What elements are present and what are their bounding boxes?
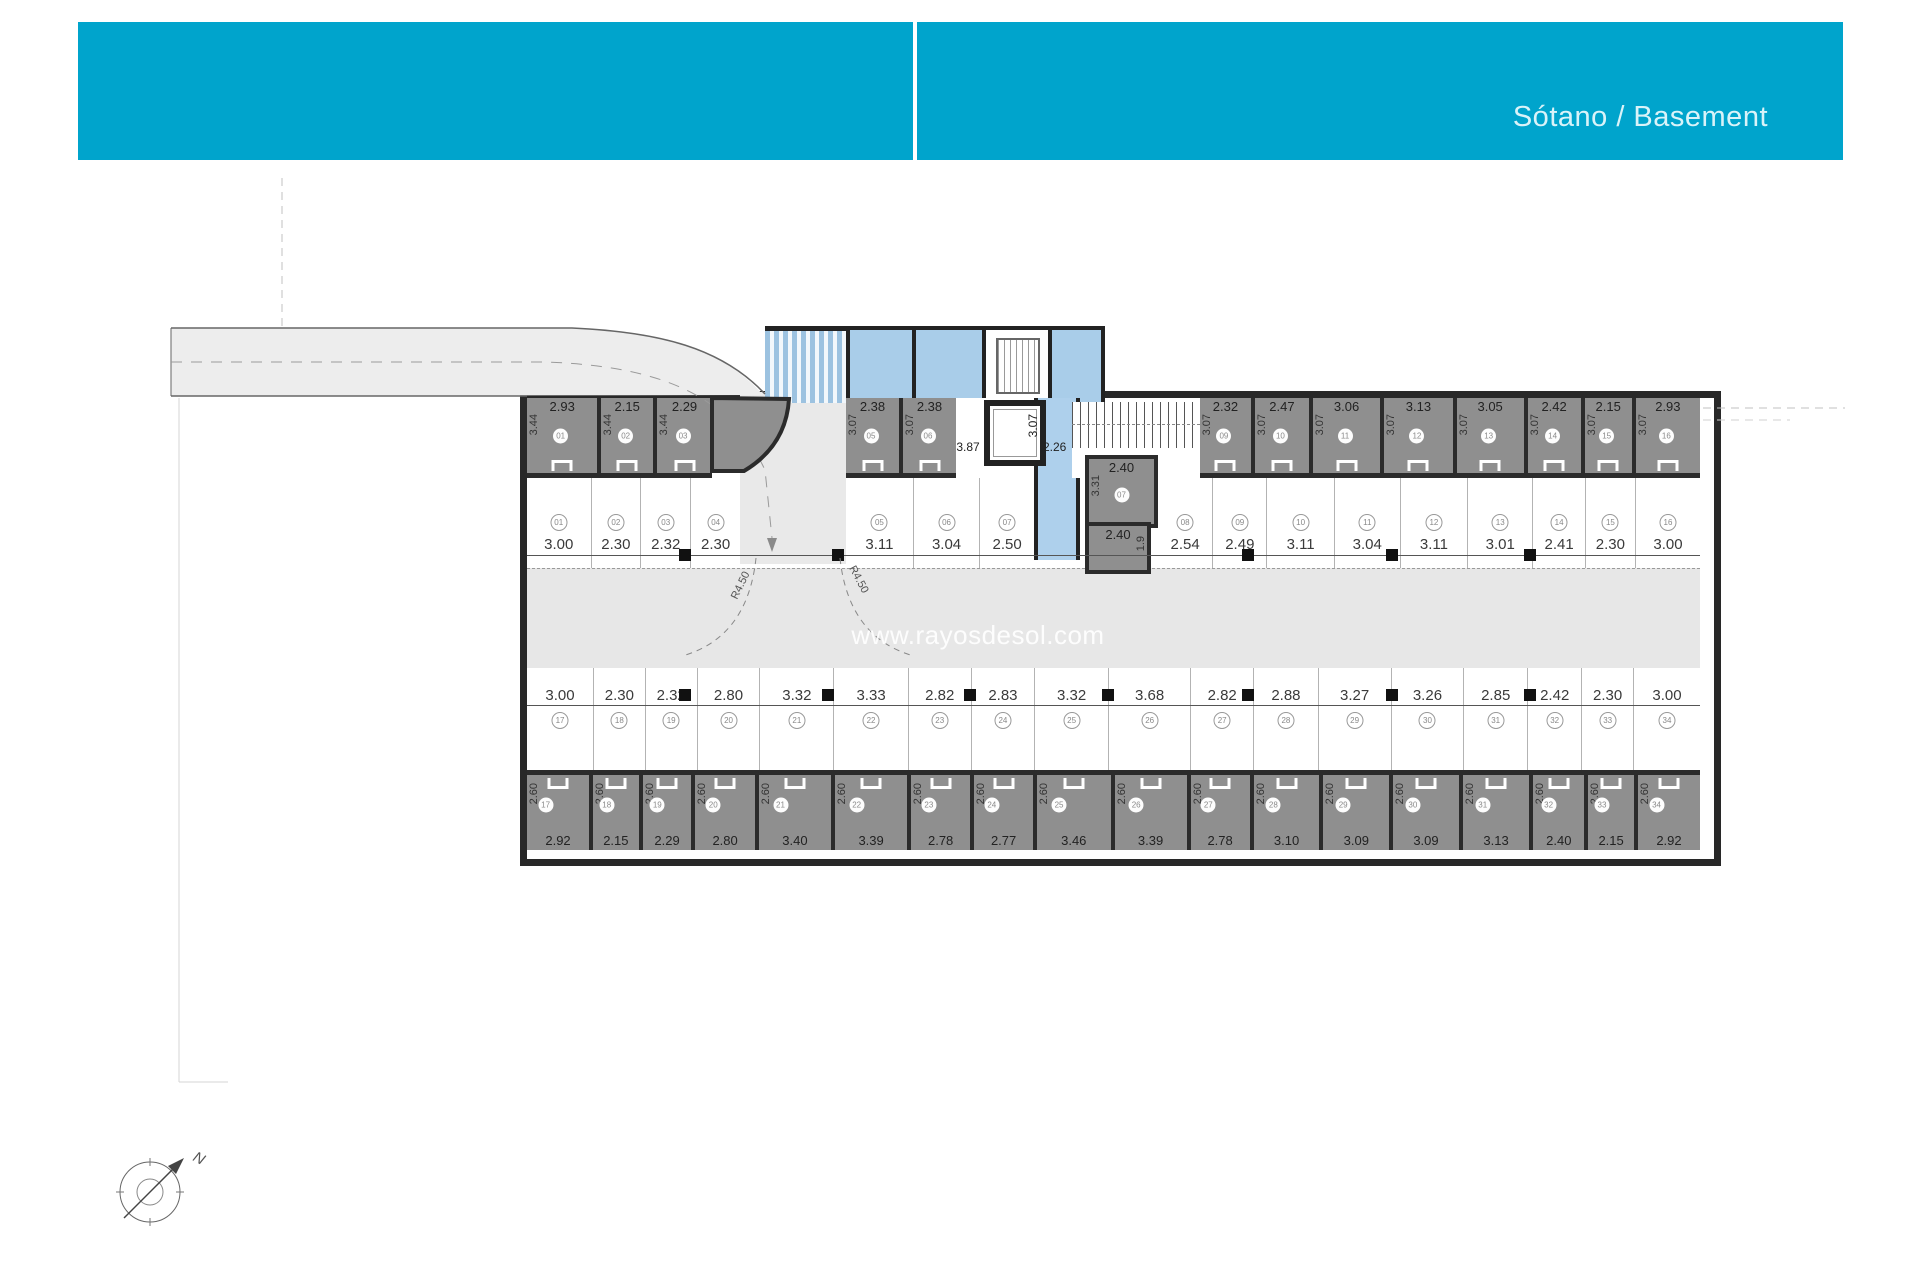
width-dimension: 2.78 — [1191, 833, 1250, 848]
door-icon — [862, 460, 883, 471]
storage-unit: 2.423.0714 — [1524, 398, 1581, 473]
space-number-badge: 29 — [1346, 712, 1363, 729]
ramp-lane — [740, 392, 846, 564]
door-icon — [657, 778, 678, 789]
depth-dimension: 3.07 — [1586, 414, 1598, 435]
width-dimension: 3.00 — [1636, 536, 1700, 553]
space-number-badge: 14 — [1551, 514, 1568, 531]
parking-space: 343.00 — [1633, 668, 1700, 770]
storage-unit: 2.153.4402 — [597, 398, 653, 473]
space-number-badge: 31 — [1487, 712, 1504, 729]
depth-dimension: 3.07 — [847, 414, 859, 435]
space-number-badge: 02 — [607, 514, 624, 531]
door-icon — [715, 778, 736, 789]
storage-unit: 3.092.6029 — [1319, 775, 1389, 850]
parking-row-lower: 173.00182.30192.32202.80213.32223.33232.… — [527, 668, 1700, 770]
width-dimension: 2.85 — [1464, 687, 1527, 704]
storage-row-top-mid: 2.383.07052.383.0706 — [846, 398, 956, 478]
unit-number-badge: 32 — [1541, 798, 1556, 813]
unit-number-badge: 29 — [1336, 798, 1351, 813]
storage-unit: 2.933.4401 — [527, 398, 597, 473]
door-icon — [1140, 778, 1161, 789]
space-number-badge: 19 — [663, 712, 680, 729]
door-icon — [1210, 778, 1231, 789]
door-icon — [930, 778, 951, 789]
width-dimension: 3.68 — [1109, 687, 1190, 704]
corridor-width-dimension: 2.26 — [1043, 440, 1066, 454]
door-icon — [605, 778, 626, 789]
width-dimension: 2.42 — [1528, 687, 1581, 704]
storage-unit: 2.922.6034 — [1634, 775, 1700, 850]
space-number-badge: 13 — [1492, 514, 1509, 531]
space-number-badge: 18 — [611, 712, 628, 729]
door-icon — [1336, 460, 1357, 471]
width-dimension: 2.15 — [1588, 833, 1634, 848]
unit-number-badge: 23 — [921, 798, 936, 813]
storage-unit: 3.133.0712 — [1380, 398, 1453, 473]
width-dimension: 3.09 — [1323, 833, 1389, 848]
depth-dimension: 2.60 — [760, 783, 772, 804]
door-icon — [617, 460, 638, 471]
door-icon — [552, 460, 573, 471]
space-number-badge: 27 — [1214, 712, 1231, 729]
unit-number-badge: 34 — [1649, 798, 1664, 813]
width-dimension: 3.33 — [834, 687, 907, 704]
space-number-badge: 28 — [1277, 712, 1294, 729]
space-number-badge: 32 — [1546, 712, 1563, 729]
space-number-badge: 11 — [1359, 514, 1376, 531]
parking-space: 253.32 — [1034, 668, 1108, 770]
width-dimension: 3.13 — [1463, 833, 1530, 848]
storage-unit: 2.153.0715 — [1581, 398, 1632, 473]
space-number-badge: 08 — [1177, 514, 1194, 531]
space-number-badge: 26 — [1141, 712, 1158, 729]
width-dimension: 2.47 — [1255, 399, 1309, 414]
door-icon — [1658, 778, 1679, 789]
parking-space: 263.68 — [1108, 668, 1190, 770]
unit-number-badge: 07 — [1114, 487, 1129, 502]
space-number-badge: 01 — [550, 514, 567, 531]
depth-dimension: 2.60 — [1394, 783, 1406, 804]
parking-space: 232.82 — [908, 668, 971, 770]
parking-space: 182.30 — [593, 668, 645, 770]
unit-number-badge: 03 — [676, 428, 691, 443]
width-dimension: 2.29 — [657, 399, 712, 414]
unit-number-badge: 12 — [1409, 428, 1424, 443]
depth-dimension: 3.44 — [602, 414, 614, 435]
header-bar-right: Sótano / Basement — [917, 22, 1843, 160]
depth-dimension: 3.07 — [1637, 414, 1649, 435]
storage-unit: 3.092.6030 — [1389, 775, 1459, 850]
width-dimension: 2.80 — [695, 833, 754, 848]
width-dimension: 3.13 — [1384, 399, 1453, 414]
unit-number-badge: 02 — [618, 428, 633, 443]
storage-row-top-right: 2.323.07092.473.07103.063.07113.133.0712… — [1200, 398, 1700, 478]
width-dimension: 2.93 — [527, 399, 597, 414]
storage-unit: 2.772.6024 — [970, 775, 1033, 850]
unit-number-badge: 13 — [1481, 428, 1496, 443]
unit-number-badge: 14 — [1545, 428, 1560, 443]
ramp-hatch — [765, 326, 846, 403]
depth-dimension: 3.44 — [716, 412, 728, 433]
width-dimension: 2.54 — [1158, 536, 1212, 553]
header-bar-left — [78, 22, 913, 160]
unit-number-badge: 10 — [1273, 428, 1288, 443]
column — [822, 689, 834, 701]
depth-dimension: 3.07 — [1314, 414, 1326, 435]
storage-unit: 3.392.6026 — [1111, 775, 1187, 850]
space-number-badge: 25 — [1063, 712, 1080, 729]
width-dimension: 2.40 — [1533, 833, 1584, 848]
width-dimension: 2.30 — [592, 536, 641, 553]
column — [964, 689, 976, 701]
column — [679, 689, 691, 701]
width-dimension: 3.46 — [1037, 833, 1111, 848]
unit-number-badge: 06 — [921, 428, 936, 443]
unit-number-badge: 24 — [984, 798, 999, 813]
door-icon — [548, 778, 569, 789]
column — [1524, 549, 1536, 561]
lobby-width-dimension: 3.87 — [938, 440, 998, 454]
unit-number-badge: 21 — [773, 798, 788, 813]
width-dimension: 2.80 — [698, 687, 760, 704]
width-dimension: 3.40 — [759, 833, 831, 848]
depth-dimension: 3.07 — [1201, 414, 1213, 435]
width-dimension: 3.39 — [835, 833, 907, 848]
storage-unit: 2.152.6018 — [589, 775, 639, 850]
width-dimension: 2.50 — [980, 536, 1034, 553]
corridor-depth-dimension: 3.07 — [1026, 414, 1040, 437]
space-number-badge: 20 — [720, 712, 737, 729]
width-dimension: 2.93 — [1636, 399, 1700, 414]
width-dimension: 3.00 — [1634, 687, 1700, 704]
door-icon — [1415, 778, 1436, 789]
door-icon — [1544, 460, 1565, 471]
parking-space: 332.30 — [1581, 668, 1633, 770]
door-icon — [1408, 460, 1429, 471]
column — [1242, 549, 1254, 561]
width-dimension: 3.11 — [1267, 536, 1333, 553]
space-number-badge: 05 — [871, 514, 888, 531]
width-dimension: 2.40 — [1089, 460, 1154, 475]
space-number-badge: 16 — [1659, 514, 1676, 531]
width-dimension: 2.92 — [527, 833, 589, 848]
door-icon — [674, 460, 695, 471]
width-dimension: 2.30 — [1586, 536, 1635, 553]
width-dimension: 2.15 — [1585, 399, 1632, 414]
space-number-badge: 17 — [552, 712, 569, 729]
door-icon — [861, 778, 882, 789]
storage-unit: 2.40 3.31 07 — [1085, 455, 1158, 528]
depth-dimension: 2.60 — [1324, 783, 1336, 804]
width-dimension: 2.77 — [974, 833, 1033, 848]
parking-space: 312.85 — [1463, 668, 1527, 770]
width-dimension: 2.88 — [1254, 687, 1317, 704]
space-number-badge: 04 — [707, 514, 724, 531]
floor-plan-page: Sótano / Basement 2.40 3.31 07 2.40 1.9 … — [0, 0, 1920, 1280]
storage-unit: 3.392.6022 — [831, 775, 907, 850]
width-dimension: 2.38 — [903, 399, 956, 414]
parking-space: 213.32 — [759, 668, 833, 770]
space-number-badge: 23 — [931, 712, 948, 729]
width-dimension: 2.83 — [972, 687, 1034, 704]
space-number-badge: 21 — [788, 712, 805, 729]
space-number-badge: 06 — [938, 514, 955, 531]
unit-number-badge: 18 — [599, 798, 614, 813]
door-icon — [1548, 778, 1569, 789]
north-label: N — [190, 1149, 208, 1169]
storage-unit: 2.152.6033 — [1584, 775, 1634, 850]
door-icon — [1486, 778, 1507, 789]
parking-space: 173.00 — [527, 668, 593, 770]
unit-number-badge: 19 — [650, 798, 665, 813]
unit-number-badge: 31 — [1475, 798, 1490, 813]
door-icon — [1480, 460, 1501, 471]
unit-number-badge: 27 — [1201, 798, 1216, 813]
storage-row-bottom: 2.922.60172.152.60182.292.60192.802.6020… — [527, 770, 1700, 850]
door-icon — [1215, 460, 1236, 471]
site-boundary — [179, 398, 228, 1082]
width-dimension: 3.00 — [527, 536, 591, 553]
storage-unit: 2.782.6027 — [1187, 775, 1250, 850]
parking-space: 242.83 — [971, 668, 1034, 770]
space-number-badge: 03 — [657, 514, 674, 531]
width-dimension: 2.15 — [601, 399, 653, 414]
storage-unit: 2.473.0710 — [1251, 398, 1309, 473]
width-dimension: 2.49 — [1213, 536, 1266, 553]
north-compass: N — [116, 1149, 208, 1226]
width-dimension: 3.10 — [1254, 833, 1320, 848]
storage-unit: 2.293.4403 — [653, 398, 712, 473]
depth-dimension: 3.44 — [658, 414, 670, 435]
storage-unit: 2.383.0706 — [899, 398, 956, 473]
parking-space: 223.33 — [833, 668, 907, 770]
parking-space: 272.82 — [1190, 668, 1253, 770]
staircase — [1072, 402, 1200, 452]
depth-dimension: 2.60 — [1116, 783, 1128, 804]
unit-number-badge: 16 — [1659, 428, 1674, 443]
door-icon — [1271, 460, 1292, 471]
space-number-badge: 34 — [1658, 712, 1675, 729]
parking-space: 282.88 — [1253, 668, 1317, 770]
width-dimension: 2.80 — [712, 450, 778, 465]
storage-unit: 3.063.0711 — [1309, 398, 1380, 473]
column — [1102, 689, 1114, 701]
depth-dimension: 2.60 — [836, 783, 848, 804]
door-icon — [1657, 460, 1678, 471]
storage-unit: 3.402.6021 — [755, 775, 831, 850]
column — [832, 549, 844, 561]
compass-needle — [168, 1158, 184, 1174]
space-number-badge: 15 — [1602, 514, 1619, 531]
drive-aisle — [527, 568, 1700, 670]
parking-space: 293.27 — [1318, 668, 1391, 770]
storage-unit: 2.933.0716 — [1632, 398, 1700, 473]
column — [1386, 549, 1398, 561]
door-icon — [1063, 778, 1084, 789]
unit-number-badge: 05 — [864, 428, 879, 443]
width-dimension: 3.11 — [846, 536, 913, 553]
depth-dimension: 3.07 — [1529, 414, 1541, 435]
space-number-badge: 09 — [1231, 514, 1248, 531]
depth-dimension: 2.60 — [1464, 783, 1476, 804]
door-icon — [1346, 778, 1367, 789]
width-dimension: 3.27 — [1319, 687, 1391, 704]
depth-dimension: 3.07 — [1458, 414, 1470, 435]
width-dimension: 2.30 — [594, 687, 645, 704]
width-dimension: 3.11 — [1401, 536, 1467, 553]
space-number-badge: 24 — [994, 712, 1011, 729]
space-number-badge: 30 — [1419, 712, 1436, 729]
width-dimension: 3.04 — [914, 536, 979, 553]
storage-unit: 2.402.6032 — [1529, 775, 1584, 850]
column — [1524, 689, 1536, 701]
unit-number-badge: 26 — [1129, 798, 1144, 813]
parking-space: 322.42 — [1527, 668, 1581, 770]
storage-unit: 3.132.6031 — [1459, 775, 1530, 850]
width-dimension: 2.92 — [1638, 833, 1700, 848]
storage-unit: 2.782.6023 — [907, 775, 970, 850]
dimension-line-lower — [527, 705, 1700, 706]
width-dimension: 2.42 — [1528, 399, 1581, 414]
storage-row-top-left: 2.933.44012.153.44022.293.4403 — [527, 398, 712, 478]
unit-number-badge: 25 — [1052, 798, 1067, 813]
unit-number-badge: 30 — [1405, 798, 1420, 813]
column — [1386, 689, 1398, 701]
storage-unit: 2.40 1.9 — [1085, 522, 1151, 574]
road-surface — [171, 328, 763, 396]
space-number-badge: 33 — [1599, 712, 1616, 729]
storage-unit: 3.053.0713 — [1453, 398, 1524, 473]
unit-number-badge: 01 — [553, 428, 568, 443]
door-icon — [919, 460, 940, 471]
storage-unit: 2.323.0709 — [1200, 398, 1251, 473]
space-number-badge: 22 — [863, 712, 880, 729]
door-icon — [1598, 460, 1619, 471]
depth-dimension: 2.60 — [1255, 783, 1267, 804]
width-dimension: 2.78 — [911, 833, 970, 848]
door-icon — [1601, 778, 1622, 789]
width-dimension: 3.05 — [1457, 399, 1524, 414]
width-dimension: 2.30 — [1582, 687, 1633, 704]
width-dimension: 3.06 — [1313, 399, 1380, 414]
unit-number-badge: 33 — [1594, 798, 1609, 813]
column — [1242, 689, 1254, 701]
unit-number-badge: 28 — [1266, 798, 1281, 813]
width-dimension: 3.39 — [1115, 833, 1187, 848]
width-dimension: 3.01 — [1468, 536, 1532, 553]
depth-dimension: 3.44 — [528, 414, 540, 435]
door-icon — [1276, 778, 1297, 789]
width-dimension: 2.38 — [846, 399, 899, 414]
depth-dimension: 3.07 — [1256, 414, 1268, 435]
width-dimension: 3.09 — [1393, 833, 1459, 848]
door-icon — [784, 778, 805, 789]
storage-unit: 3.102.6028 — [1250, 775, 1320, 850]
column — [679, 549, 691, 561]
depth-dimension: 3.07 — [1385, 414, 1397, 435]
width-dimension: 2.30 — [691, 536, 740, 553]
width-dimension: 3.00 — [527, 687, 593, 704]
space-number-badge: 07 — [999, 514, 1016, 531]
width-dimension: 2.41 — [1533, 536, 1584, 553]
unit-number-badge: 15 — [1599, 428, 1614, 443]
unit-number-badge: 04 — [731, 428, 746, 443]
width-dimension: 2.82 — [909, 687, 971, 704]
storage-unit: 2.922.6017 — [527, 775, 589, 850]
width-dimension: 3.26 — [1392, 687, 1464, 704]
width-dimension: 2.29 — [643, 833, 692, 848]
unit-number-badge: 11 — [1338, 428, 1353, 443]
space-number-badge: 10 — [1292, 514, 1309, 531]
storage-unit: 2.292.6019 — [639, 775, 692, 850]
width-dimension: 2.15 — [593, 833, 639, 848]
page-title: Sótano / Basement — [1513, 101, 1768, 134]
door-icon — [993, 778, 1014, 789]
grille-fixture — [996, 338, 1040, 394]
depth-dimension: 1.9 — [1135, 536, 1147, 551]
unit-number-badge: 17 — [538, 798, 553, 813]
watermark: www.rayosdesol.com — [828, 620, 1128, 651]
storage-unit: 2.802.6020 — [691, 775, 754, 850]
unit-number-badge: 09 — [1216, 428, 1231, 443]
unit-number-badge: 20 — [706, 798, 721, 813]
parking-space: 192.32 — [645, 668, 697, 770]
depth-dimension: 3.07 — [904, 414, 916, 435]
width-dimension: 2.32 — [1200, 399, 1251, 414]
width-dimension: 3.32 — [1035, 687, 1108, 704]
space-number-badge: 12 — [1425, 514, 1442, 531]
storage-unit: 2.383.0705 — [846, 398, 899, 473]
parking-space: 202.80 — [697, 668, 760, 770]
storage-unit: 3.462.6025 — [1033, 775, 1111, 850]
depth-dimension: 3.31 — [1090, 475, 1102, 496]
unit-number-badge: 22 — [849, 798, 864, 813]
parking-space: 303.26 — [1391, 668, 1464, 770]
depth-dimension: 2.60 — [1038, 783, 1050, 804]
